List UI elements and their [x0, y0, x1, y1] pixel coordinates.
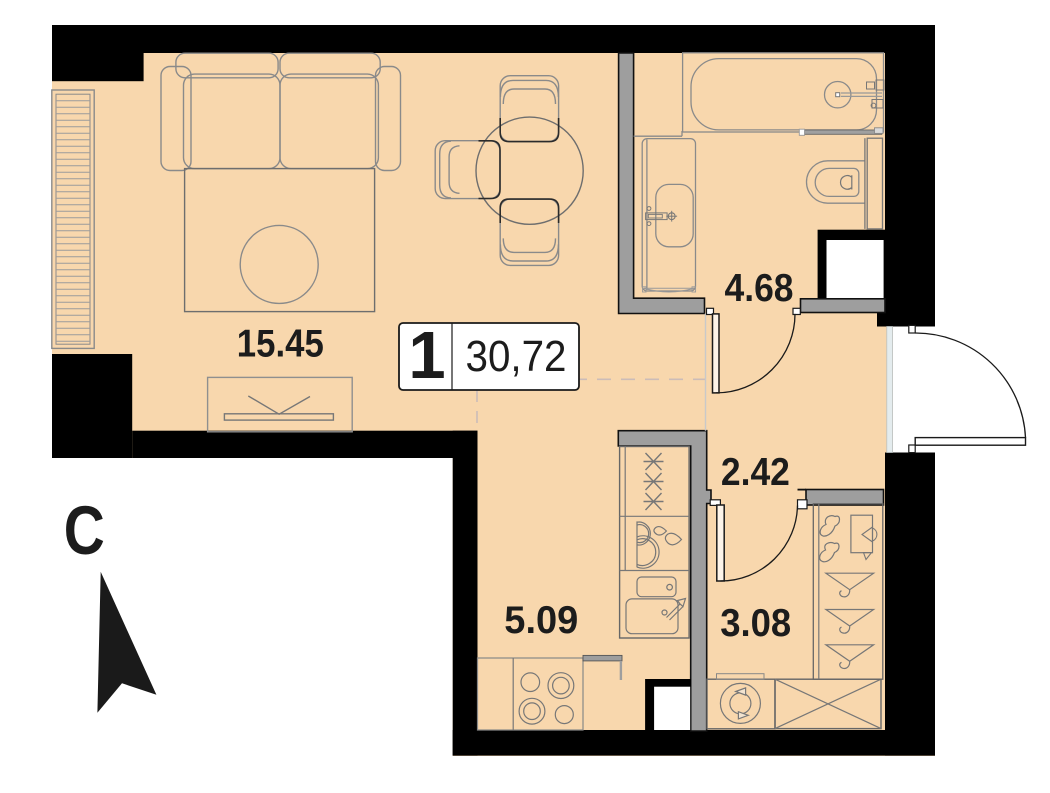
svg-text:4.68: 4.68 [725, 267, 794, 310]
svg-text:С: С [64, 492, 105, 569]
svg-text:15.45: 15.45 [237, 323, 324, 366]
svg-text:5.09: 5.09 [504, 599, 578, 642]
svg-text:30,72: 30,72 [466, 332, 567, 381]
svg-text:1: 1 [408, 318, 445, 393]
svg-text:2.42: 2.42 [721, 451, 790, 494]
svg-text:3.08: 3.08 [720, 602, 791, 645]
